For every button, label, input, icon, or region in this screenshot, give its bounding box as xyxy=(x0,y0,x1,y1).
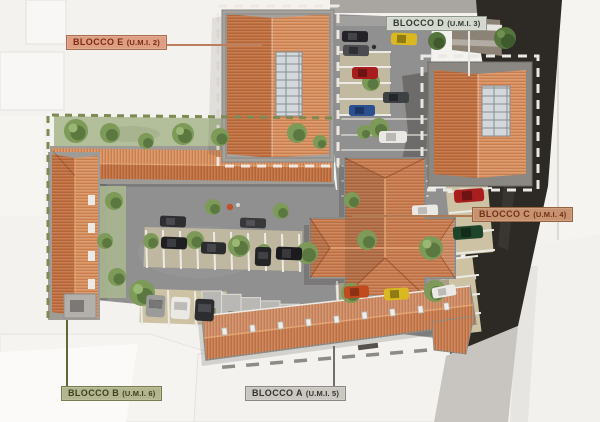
label-blocco-a-umi: (U.M.I. 5) xyxy=(306,389,339,398)
label-blocco-e-name: BLOCCO E xyxy=(73,37,124,47)
label-blocco-c-umi: (U.M.I. 4) xyxy=(533,210,566,219)
pedestrian xyxy=(372,45,376,49)
label-blocco-d: BLOCCO D (U.M.I. 3) xyxy=(386,16,487,31)
tree xyxy=(313,135,327,149)
playground-element xyxy=(236,203,240,207)
tree xyxy=(97,233,113,249)
tree xyxy=(108,268,126,286)
parked-car xyxy=(276,247,302,261)
parked-car xyxy=(161,237,187,250)
parked-car xyxy=(160,216,186,228)
tree xyxy=(428,32,446,50)
context-building xyxy=(0,344,138,422)
parked-car xyxy=(240,218,266,229)
parked-car xyxy=(194,299,214,322)
label-blocco-d-umi: (U.M.I. 3) xyxy=(447,19,480,28)
roof-tiles xyxy=(52,154,75,316)
parked-car xyxy=(352,67,378,79)
tree xyxy=(228,235,250,257)
tree xyxy=(273,203,289,219)
bush xyxy=(143,233,159,249)
solar-grid xyxy=(276,52,302,116)
parked-car xyxy=(344,285,370,298)
label-blocco-e: BLOCCO E (U.M.I. 2) xyxy=(66,35,167,50)
parked-car xyxy=(343,45,369,56)
context-building xyxy=(26,0,66,44)
building-blocco-d xyxy=(422,56,538,190)
tree xyxy=(100,123,120,143)
parked-car xyxy=(255,247,272,267)
context-building xyxy=(0,116,44,216)
label-blocco-a-name: BLOCCO A xyxy=(252,388,303,398)
parked-car xyxy=(201,242,226,255)
tree xyxy=(64,119,88,143)
label-blocco-d-name: BLOCCO D xyxy=(393,18,444,28)
tree xyxy=(172,123,194,145)
tree xyxy=(344,192,360,208)
label-blocco-a: BLOCCO A (U.M.I. 5) xyxy=(245,386,346,401)
context-roof-edge xyxy=(330,0,478,13)
tree xyxy=(205,199,221,215)
context-building xyxy=(0,52,64,110)
parked-car xyxy=(453,225,484,240)
playground-element xyxy=(227,204,233,210)
label-blocco-b-umi: (U.M.I. 6) xyxy=(122,389,155,398)
parked-car xyxy=(454,188,485,203)
label-blocco-e-umi: (U.M.I. 2) xyxy=(127,38,160,47)
parked-car xyxy=(170,297,190,320)
label-blocco-c-name: BLOCCO C xyxy=(479,209,530,219)
label-blocco-b-name: BLOCCO B xyxy=(68,388,119,398)
tree xyxy=(138,133,154,149)
parked-car xyxy=(412,204,439,216)
tree xyxy=(357,125,371,139)
tree xyxy=(211,128,229,146)
label-blocco-b: BLOCCO B (U.M.I. 6) xyxy=(61,386,162,401)
tree xyxy=(287,123,307,143)
annex-shade xyxy=(70,300,84,312)
site-plan-rendering: BLOCCO E (U.M.I. 2) BLOCCO D (U.M.I. 3) … xyxy=(0,0,600,422)
parked-car xyxy=(145,295,165,318)
tree xyxy=(105,192,123,210)
parked-car xyxy=(379,131,407,143)
parked-car xyxy=(349,105,375,116)
parked-car xyxy=(383,92,409,103)
tree xyxy=(419,236,443,260)
tree xyxy=(494,27,516,49)
parked-car xyxy=(384,287,410,300)
parked-car xyxy=(391,33,417,46)
parked-car xyxy=(342,31,368,42)
solar-grid xyxy=(482,86,510,136)
roof-tiles xyxy=(226,14,272,158)
roof-tiles xyxy=(434,70,478,178)
tree xyxy=(357,230,377,250)
label-blocco-c: BLOCCO C (U.M.I. 4) xyxy=(472,207,573,222)
